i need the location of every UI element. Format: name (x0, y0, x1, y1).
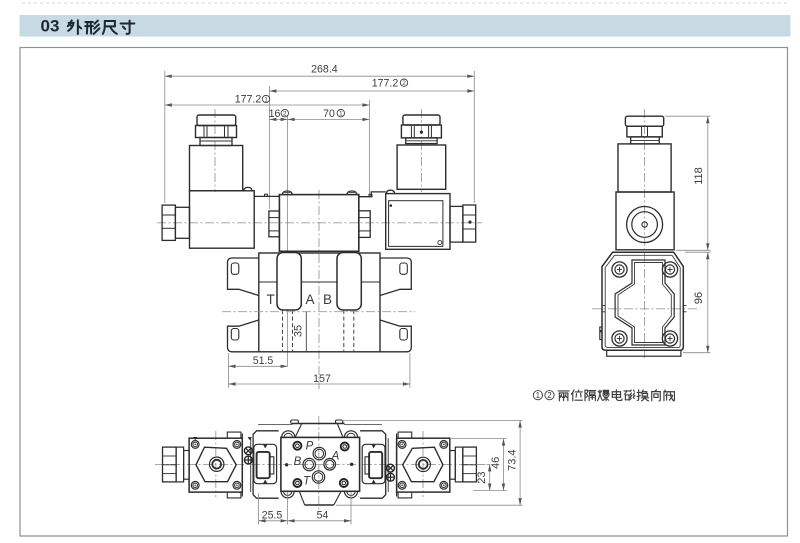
svg-text:25.5: 25.5 (262, 510, 283, 522)
svg-text:T: T (266, 292, 274, 307)
svg-text:51.5: 51.5 (253, 355, 274, 367)
svg-text:73.4: 73.4 (506, 449, 518, 470)
svg-text:16: 16 (269, 108, 281, 120)
svg-text:B: B (323, 292, 332, 307)
svg-text:118: 118 (693, 167, 705, 185)
svg-text:A: A (331, 450, 340, 462)
svg-text:T: T (303, 475, 311, 487)
svg-text:B: B (294, 456, 302, 468)
svg-text:35: 35 (293, 325, 305, 337)
svg-text:2: 2 (402, 80, 406, 87)
svg-text:A: A (305, 292, 314, 307)
svg-text:54: 54 (317, 510, 329, 522)
svg-text:96: 96 (693, 292, 705, 304)
svg-text:1: 1 (264, 96, 268, 103)
svg-text:70: 70 (323, 108, 335, 120)
svg-text:2: 2 (547, 391, 552, 400)
svg-text:177.2: 177.2 (372, 77, 399, 89)
svg-text:03: 03 (41, 17, 60, 36)
svg-text:46: 46 (490, 457, 502, 469)
svg-text:177.2: 177.2 (235, 94, 262, 106)
svg-text:1: 1 (339, 111, 343, 118)
svg-text:P: P (306, 441, 314, 453)
svg-text:2: 2 (283, 111, 287, 118)
svg-text:157: 157 (313, 373, 331, 385)
svg-text:1: 1 (536, 391, 541, 400)
svg-text:23: 23 (476, 471, 488, 483)
svg-text:268.4: 268.4 (311, 64, 338, 76)
